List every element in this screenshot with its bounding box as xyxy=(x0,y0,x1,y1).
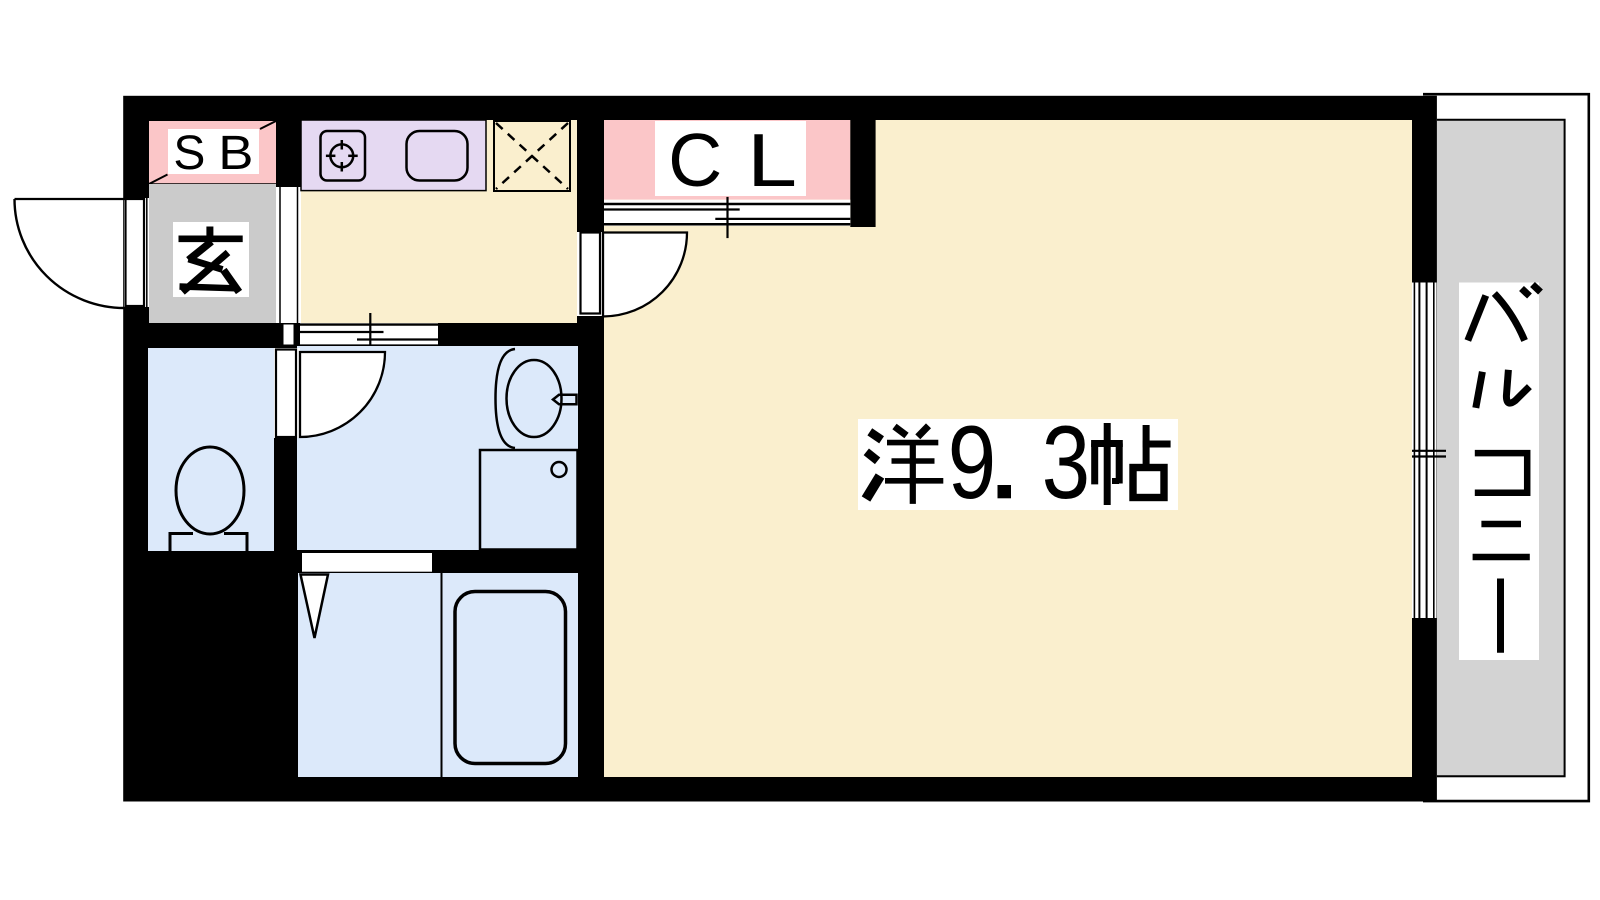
svg-text:C: C xyxy=(668,118,722,202)
svg-text:3: 3 xyxy=(1042,405,1091,521)
svg-text:9: 9 xyxy=(948,405,997,521)
svg-text:B: B xyxy=(218,125,253,179)
svg-text:S: S xyxy=(173,127,205,180)
svg-text:L: L xyxy=(747,118,797,202)
